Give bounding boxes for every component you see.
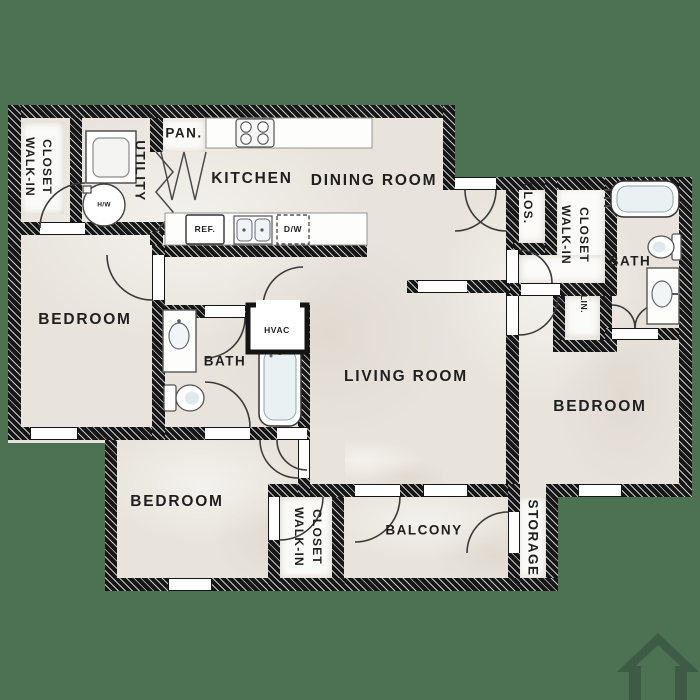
room-label-bedroom-left: BEDROOM [38,311,132,329]
pantry-bifold-door [161,152,206,200]
room-label-bath-top-right: BATH [609,254,652,269]
door-arc [467,512,508,553]
stove-burner [258,134,268,144]
room-label-closet-small: CLOS. [521,182,535,225]
room-label-walk-in-closet-top-right-1: WALK-IN [559,205,573,265]
room-label-kitchen: KITCHEN [211,170,293,188]
door-arc [519,296,558,335]
room-label-pantry: PAN. [165,126,202,141]
toilet-tank [164,385,176,411]
door-arc [107,255,152,300]
bathtub-inner [264,350,296,420]
door-arc [277,440,307,470]
washer-door [93,138,129,177]
fixture-label-dishwasher: D/W [284,224,302,234]
vanity-faucet [177,319,181,323]
house-icon [613,622,700,700]
toilet-bowl-inner [185,392,199,405]
room-label-bedroom-right: BEDROOM [553,398,647,416]
toilet-bowl-inner [653,242,666,253]
room-label-balcony: BALCONY [385,523,462,538]
floor-plan-canvas: WALK-IN CLOSET UTILITY PAN. KITCHEN DINI… [0,0,700,700]
vanity-sink [652,281,672,307]
room-label-dining-room: DINING ROOM [311,172,438,190]
vanity-sink [169,323,189,349]
door-arc [455,190,496,231]
room-label-bath-middle: BATH [204,354,247,369]
door-arc [465,190,506,231]
room-label-walk-in-closet-top-left-1: WALK-IN [23,137,37,197]
house-leg [675,666,687,700]
stove-burner [258,122,268,132]
room-label-walk-in-closet-bottom-1: WALK-IN [292,507,306,567]
door-arc [205,318,245,358]
room-label-bedroom-bottom: BEDROOM [130,493,224,511]
room-label-linen: LIN. [579,295,589,313]
door-arc [260,440,298,478]
house-leg [629,666,641,700]
counter-top [206,118,372,148]
stove-burner [241,134,251,144]
room-label-storage: STORAGE [526,499,541,576]
door-arc [612,305,635,328]
room-label-hvac: HVAC [264,325,290,335]
room-label-living-room: LIVING ROOM [344,368,468,386]
room-label-walk-in-closet-top-right-2: CLOSET [577,207,591,263]
stove-burner [241,122,251,132]
bath-right-fixtures [604,181,681,324]
bathtub-inner [617,186,673,212]
utility-fixtures [83,131,136,226]
fixtures-layer [0,0,700,700]
hvac-door-gap [256,300,300,308]
room-label-walk-in-closet-top-left-2: CLOSET [40,139,54,195]
fixture-label-water-heater: H/W [97,202,111,209]
door-arc [519,250,552,283]
door-arc [205,382,250,427]
sink-drain [242,228,245,231]
room-label-utility: UTILITY [133,140,148,202]
sink-drain [260,228,263,231]
bathtub-drain [270,355,273,358]
water-heater-pipe [83,186,91,193]
room-label-walk-in-closet-bottom-2: CLOSET [310,509,324,565]
fixture-label-refrigerator: REF. [195,224,216,234]
